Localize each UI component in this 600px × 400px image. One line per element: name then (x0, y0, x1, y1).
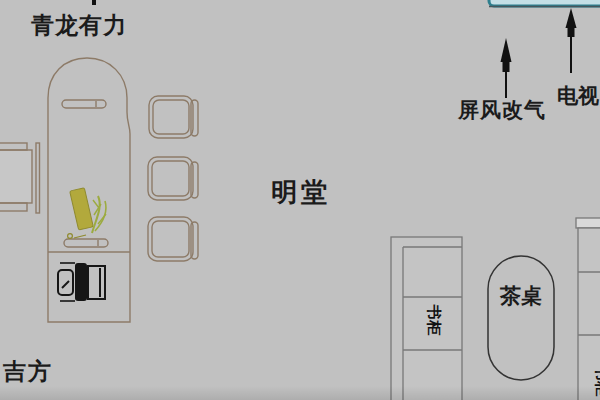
desk-handle-top (62, 100, 106, 108)
label-right-cabinet-lower: 书柜 (592, 362, 600, 400)
executive-desk (48, 58, 130, 322)
screen-arrow-icon (501, 38, 512, 98)
label-left-cabinet: 书柜 (424, 301, 443, 341)
label-screen-qi: 屏风改气 (458, 96, 546, 124)
desk-handle-bottom (64, 239, 108, 247)
label-tv: 电视 (557, 82, 599, 110)
label-azure-dragon: 青龙有力 (31, 10, 127, 41)
screen-tank-shape (489, 0, 600, 7)
guest-chair-3 (148, 217, 198, 261)
tv-arrow-icon (566, 8, 577, 73)
guest-chair-1 (149, 96, 198, 138)
floorplan-canvas: 青龙有力 明堂 屏风改气 电视 吉方 茶桌 书柜 书柜 书柜 (0, 0, 600, 400)
tea-table-shape (488, 256, 554, 380)
label-auspicious-side: 吉方 (3, 356, 53, 387)
cutoff-arrow-tick (92, 0, 96, 5)
label-ming-tang: 明堂 (271, 175, 331, 210)
office-chair-icon (58, 263, 105, 301)
desk-plant-icon (68, 188, 106, 239)
guest-chair-2 (148, 157, 198, 200)
side-chair (0, 143, 40, 213)
label-tea-table: 茶桌 (500, 278, 530, 315)
